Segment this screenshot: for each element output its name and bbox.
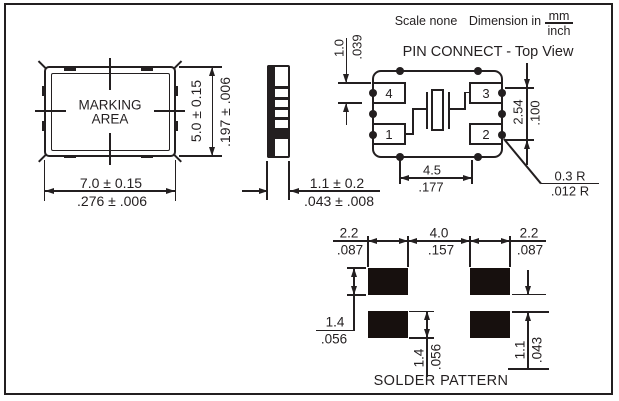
pad-spacing-mm: 4.0 — [430, 226, 449, 240]
crystal-symbol — [431, 89, 445, 131]
pad-width-right-mm: 2.2 — [520, 226, 539, 240]
edge-notch — [64, 155, 76, 158]
pad-width-left-mm: 2.2 — [340, 226, 359, 240]
ext-line — [338, 82, 371, 84]
solder-pad-top-right — [470, 268, 510, 295]
pad-pitch-mm: 2.54 — [512, 99, 525, 124]
dim-line — [508, 368, 549, 370]
edge-notch — [141, 68, 153, 71]
pad-pitch-inch: .100 — [528, 100, 541, 125]
pad-height-mm: 1.0 — [333, 39, 346, 57]
ext-line — [44, 160, 46, 201]
pad-span-inch: .177 — [418, 181, 443, 194]
arrowhead — [45, 188, 54, 194]
arrowhead — [343, 103, 349, 112]
solder-pad-bottom-right — [470, 311, 510, 338]
wire — [412, 108, 414, 135]
side-segment-line — [274, 107, 289, 110]
corner-radius-mm: 0.3 R — [554, 169, 585, 182]
arrowhead — [351, 286, 357, 295]
dim-line — [353, 268, 355, 330]
pad-width-right-inch: .087 — [517, 243, 543, 257]
ext-line — [505, 87, 534, 89]
center-mark — [154, 110, 185, 112]
thickness-inch: .043 ± .008 — [304, 194, 374, 208]
dim-line — [212, 67, 214, 156]
solder-pad-bottom-left — [368, 311, 408, 338]
center-mark — [35, 110, 66, 112]
arrowhead — [424, 311, 430, 320]
pin-connect-title: PIN CONNECT - Top View — [403, 45, 574, 60]
pin-3-label: 3 — [482, 86, 489, 101]
edge-notch — [141, 155, 153, 158]
pad-height-upper-mm: 1.4 — [326, 315, 345, 329]
marking-area-label: MARKING — [78, 98, 141, 112]
thickness-mm: 1.1 ± 0.2 — [310, 176, 364, 190]
pad-width-left-inch: .087 — [337, 243, 363, 257]
side-metallization — [267, 65, 275, 158]
pad-spacing-inch: .157 — [428, 243, 454, 257]
solder-pattern-title: SOLDER PATTERN — [374, 374, 509, 389]
ext-line — [288, 161, 290, 200]
arrowhead — [166, 188, 175, 194]
ext-line — [338, 102, 362, 104]
edge-notch — [64, 68, 76, 71]
arrowhead — [424, 329, 430, 338]
corner-radius-inch: .012 R — [551, 185, 589, 198]
crystal-plate — [448, 92, 450, 129]
pad-4: 4 — [372, 82, 406, 104]
arrowhead — [501, 238, 510, 244]
wire — [464, 92, 466, 111]
pin-1-label: 1 — [385, 127, 392, 142]
arrowhead — [399, 238, 408, 244]
wire — [405, 133, 414, 135]
center-mark — [109, 58, 111, 90]
pin-2-label: 2 — [482, 127, 489, 142]
arrowhead — [525, 286, 531, 295]
package-outline-drawing: Scale none Dimension in mm inch MARKING … — [0, 0, 619, 401]
arrowhead — [525, 312, 531, 321]
ext-line — [179, 155, 222, 157]
scale-label: Scale none — [395, 14, 458, 27]
pad-span-mm: 4.5 — [423, 164, 441, 177]
arrowhead — [461, 238, 470, 244]
row-gap-inch: .043 — [530, 337, 544, 363]
arrowhead — [259, 188, 268, 194]
pad-height-inch: .039 — [351, 34, 364, 59]
unit-mm-label: mm — [549, 9, 570, 22]
package-width-inch: .276 ± .006 — [77, 194, 147, 208]
ext-line — [505, 139, 534, 141]
pad-height-lower-inch: .056 — [429, 343, 443, 369]
center-mark — [109, 133, 111, 165]
arrowhead — [524, 140, 530, 149]
arrowhead — [470, 238, 479, 244]
arrowhead — [368, 238, 377, 244]
ext-line — [175, 160, 177, 201]
pad-height-upper-inch: .056 — [321, 332, 347, 346]
unit-inch-label: inch — [548, 24, 571, 37]
package-height-inch: .197 ± .006 — [218, 77, 232, 147]
side-segment-line — [274, 128, 289, 139]
side-segment-line — [274, 86, 289, 89]
ext-line — [266, 161, 268, 200]
arrowhead — [351, 268, 357, 277]
crystal-plate — [426, 92, 428, 129]
arrowhead — [209, 67, 215, 76]
dimension-in-label: Dimension in — [469, 14, 541, 27]
pin-4-label: 4 — [385, 86, 392, 101]
ext-line — [409, 311, 434, 313]
edge-notch — [175, 86, 178, 96]
edge-notch — [42, 121, 45, 131]
pad-1: 1 — [372, 123, 406, 145]
edge-notch — [175, 121, 178, 131]
arrowhead — [463, 175, 472, 181]
ext-line — [409, 337, 434, 339]
solder-pad-top-left — [368, 268, 408, 295]
row-gap-mm: 1.1 — [513, 341, 527, 360]
marking-area-label: AREA — [92, 112, 129, 126]
package-width-mm: 7.0 ± 0.15 — [80, 176, 142, 190]
arrowhead — [400, 175, 409, 181]
ext-line — [179, 66, 222, 68]
arrowhead — [408, 238, 417, 244]
pad-height-lower-mm: 1.4 — [412, 348, 426, 367]
edge-notch — [42, 86, 45, 96]
side-segment-line — [274, 97, 289, 100]
side-segment-line — [274, 117, 289, 120]
package-height-mm: 5.0 ± 0.15 — [189, 80, 203, 142]
arrowhead — [209, 147, 215, 156]
